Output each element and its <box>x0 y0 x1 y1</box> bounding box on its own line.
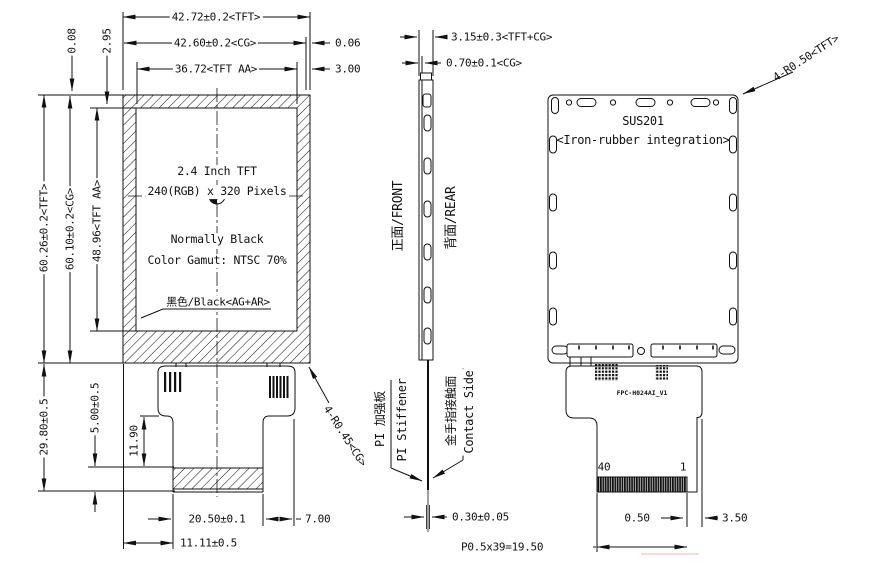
side-rear-label: 背面/REAR <box>444 184 460 251</box>
front-view-drawing <box>38 12 330 549</box>
dim-tft-height: 60.26±0.2<TFT> <box>37 182 50 275</box>
dim-fpc-thickness: 0.30±0.05 <box>450 510 511 523</box>
dim-aa-top-offset: 2.95 <box>100 26 113 55</box>
dim-tft-width: 42.72±0.2<TFT> <box>170 10 263 23</box>
side-front-label: 正面/FRONT <box>391 179 407 254</box>
dim-cg-right-offset: 0.06 <box>333 36 362 49</box>
panel-gamut-label: Color Gamut: NTSC 70% <box>145 254 288 268</box>
dim-tab-right-margin: 7.00 <box>303 512 332 525</box>
dim-edge-margin: 3.50 <box>720 511 749 524</box>
dim-aa-right-margin: 3.00 <box>333 62 362 75</box>
dim-cg-top-offset: 0.08 <box>65 26 78 55</box>
dim-aa-height: 48.96<TFT AA> <box>90 178 103 264</box>
dim-tab-left-offset: 11.11±0.5 <box>178 536 239 549</box>
panel-mode-label: Normally Black <box>169 233 266 247</box>
dim-module-lower-height: 29.80±0.5 <box>37 397 50 458</box>
fpc-pin-40-label: 40 <box>596 460 613 473</box>
panel-resolution-label: 240(RGB) x 320 Pixels <box>145 185 288 199</box>
dim-cg-thickness: 0.70±0.1<CG> <box>444 56 524 69</box>
lcd-module-drawing: 42.72±0.2<TFT> 42.60±0.2<CG> 0.06 36.72<… <box>0 0 873 569</box>
stiffener-label-en: PI Stiffener <box>395 376 409 463</box>
fpc-part-number: FPC-H024AI_V1 <box>615 390 670 398</box>
dim-aa-width: 36.72<TFT AA> <box>173 62 259 75</box>
stiffener-label-cn: PI 加强板 <box>373 389 387 449</box>
dim-stiffener-width: 20.50±0.1 <box>187 512 248 525</box>
rear-material-label: SUS201 <box>620 114 666 128</box>
dim-pin-width: 0.50 <box>622 511 651 524</box>
panel-surface-label: 黑色/Black<AG+AR> <box>164 295 272 308</box>
dim-pin-pitch: P0.5x39=19.50 <box>459 540 545 553</box>
dim-cg-height: 60.10±0.2<CG> <box>63 186 76 272</box>
contact-side-label-en: Contact Side <box>462 368 476 455</box>
rear-material-note: <Iron-rubber integration> <box>554 133 731 147</box>
dim-fpc-tab-height: 11.90 <box>127 423 140 459</box>
dim-total-thickness: 3.15±0.3<TFT+CG> <box>449 30 554 43</box>
dim-cg-width: 42.60±0.2<CG> <box>172 36 258 49</box>
fpc-pin-1-label: 1 <box>678 460 688 473</box>
dim-stiffener-height: 5.00±0.5 <box>88 381 101 436</box>
drawing-linework <box>0 0 873 569</box>
panel-size-label: 2.4 Inch TFT <box>175 165 258 179</box>
contact-side-label-cn: 金手指接触面 <box>444 374 458 448</box>
